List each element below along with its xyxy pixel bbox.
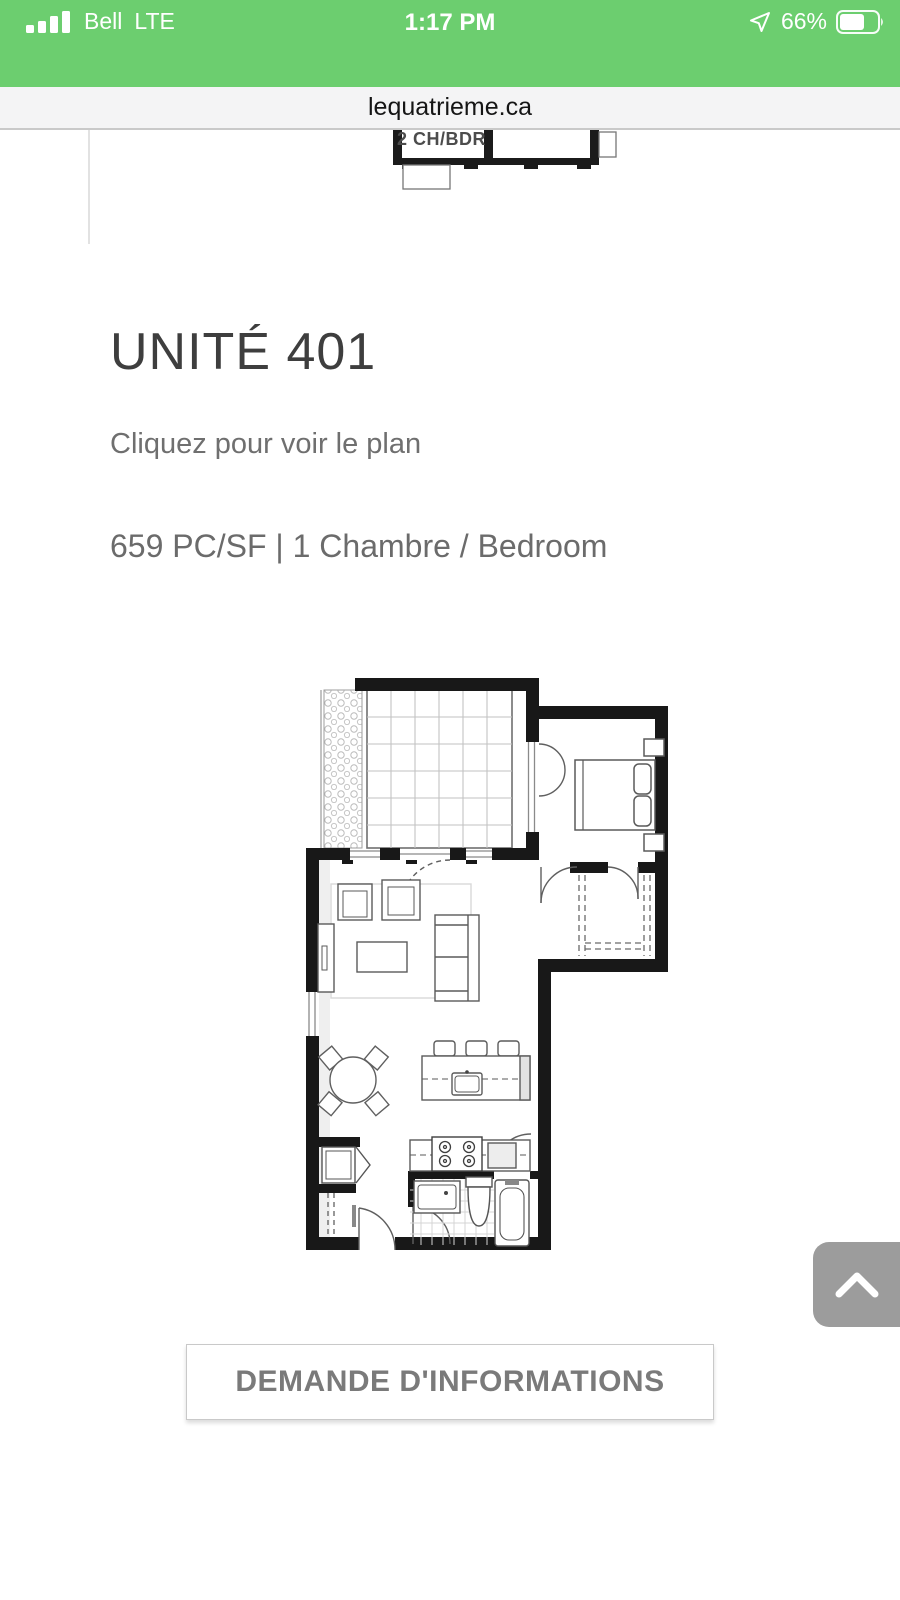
previous-plan-room-label: 2 CH/BDR: [397, 129, 486, 150]
chevron-up-icon: [831, 1268, 883, 1302]
location-arrow-icon: [748, 10, 772, 34]
terrace: [321, 690, 512, 848]
unit-floorplan[interactable]: [298, 660, 680, 1250]
content-left-rule: [88, 130, 90, 244]
living-room-furniture: [318, 880, 479, 1001]
battery-percent: 66%: [781, 8, 827, 35]
kitchen-furniture: [410, 1041, 530, 1171]
plan-hint: Cliquez pour voir le plan: [110, 428, 421, 461]
status-bar: Bell LTE 1:17 PM 66%: [0, 0, 900, 87]
unit-specs: 659 PC/SF | 1 Chambre / Bedroom: [110, 528, 607, 565]
url-text: lequatrieme.ca: [368, 93, 532, 122]
bathroom-fixtures: [414, 1177, 529, 1246]
request-info-button[interactable]: DEMANDE D'INFORMATIONS: [186, 1344, 714, 1420]
unit-title: UNITÉ 401: [110, 322, 376, 382]
address-bar[interactable]: lequatrieme.ca: [0, 87, 900, 130]
mobile-safari-screen: Bell LTE 1:17 PM 66% lequatrieme.ca: [0, 0, 900, 1600]
battery-icon: [836, 10, 886, 34]
closet-shelving: [579, 875, 650, 956]
floorplan-drawing: [298, 660, 680, 1250]
scroll-to-top-button[interactable]: [813, 1242, 900, 1327]
bedroom-furniture: [575, 739, 664, 851]
status-bar-right: 66%: [748, 8, 886, 35]
